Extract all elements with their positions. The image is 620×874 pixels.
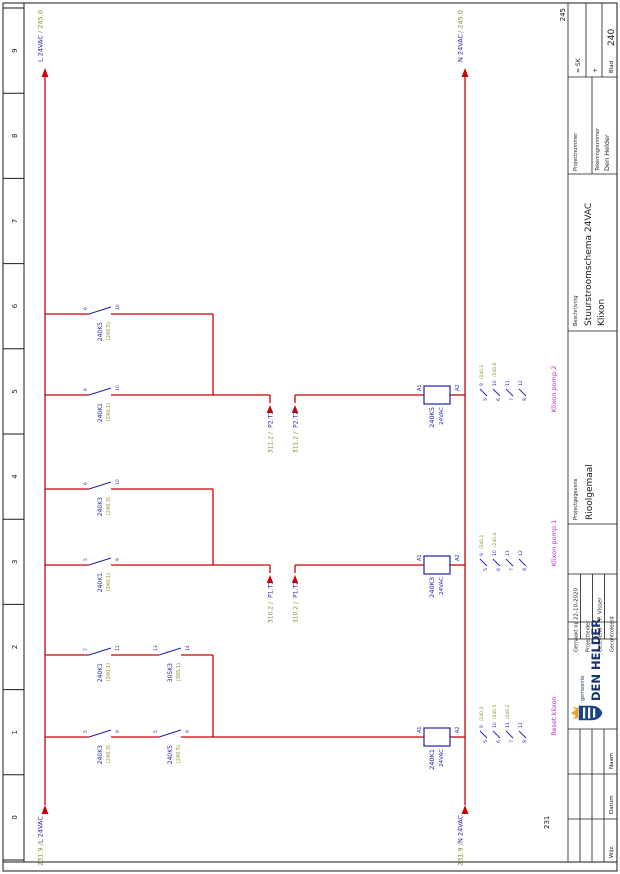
contact-ref: (240.1) <box>106 663 112 681</box>
contact-labels: 240K3 (240.3) 5 9 240K5 (240.5) 5 9 240K… <box>83 304 191 764</box>
sheet-label: Blad <box>609 61 615 73</box>
drawn-label: Getekend <box>598 628 604 652</box>
mirror-pin: 6 <box>496 398 502 401</box>
pin-label: 7 <box>83 648 89 651</box>
coil-name: 240K1 <box>428 749 436 770</box>
pin-label: 10 <box>115 304 121 310</box>
interrupt-labels: 310.2 / P1.T1 310.2 / P1.T2 311.2 / P2.T… <box>268 411 300 623</box>
titleblock-content: Wijz. Datum Naam gemeente DEN HELDER Gem… <box>571 29 617 858</box>
pin-label: 6 <box>83 482 89 485</box>
description-label: Beschrijving <box>573 295 579 326</box>
logo-text-small: gemeente <box>580 676 586 701</box>
prev-sheet-number: 231 <box>543 816 551 829</box>
mirror-pin: 12 <box>518 722 524 728</box>
coil-name: 240K5 <box>428 407 436 428</box>
mirror-pin: 8 <box>522 740 528 743</box>
contact-ref: (240.5) <box>176 745 182 763</box>
rail-dest-name: N 24VAC <box>457 33 465 62</box>
mirror-pin: 11 <box>505 722 511 728</box>
mirror-pin: 7 <box>509 740 515 743</box>
ruler-digit: 2 <box>11 645 19 649</box>
coil-voltage: 24VAC <box>439 749 445 767</box>
mirror-ref: /240.1 <box>479 364 485 379</box>
coil-pin-a1: A1 <box>417 384 423 391</box>
mirror-ref: /240.5 <box>492 704 498 719</box>
description-line1: Stuurstroomschema 24VAC <box>584 203 594 326</box>
mirror-ref: /240.1 <box>479 534 485 549</box>
contact-ref: (240.1) <box>106 403 112 421</box>
mirror-pin: 10 <box>492 722 498 728</box>
interrupt-ref: 311.2 / <box>268 431 275 453</box>
contact-name: 240K3 <box>97 745 104 764</box>
contact-name: 240K1 <box>97 573 104 592</box>
mirror-pin: 6 <box>496 740 502 743</box>
sheet-number: 240 <box>607 29 617 46</box>
rev-col-wijz: Wijz. <box>609 845 615 858</box>
coil-symbol <box>424 728 450 746</box>
contact-name: 240K5 <box>97 322 104 341</box>
contact-name: 240K1 <box>97 663 104 682</box>
contact-ref: (240.5) <box>106 322 112 340</box>
mirror-pin: 12 <box>518 380 524 386</box>
schematic-page: 0 1 2 3 4 5 6 7 8 9 <box>0 0 620 874</box>
mirror-pin: 7 <box>509 398 515 401</box>
pin-label: 9 <box>115 730 121 733</box>
pin-label: 10 <box>115 479 121 485</box>
coil-pin-a2: A2 <box>455 726 461 733</box>
interrupt-ref: 311.2 / <box>293 431 300 453</box>
coil-voltage: 24VAC <box>439 577 445 595</box>
ruler-digit: 6 <box>11 303 19 308</box>
rail-dest-ref: / 245.0 <box>37 10 45 33</box>
mirror-pin: 9 <box>479 725 485 728</box>
rail-source-name: N 24VAC <box>457 814 465 843</box>
rail-source-name: L 24VAC <box>37 816 45 843</box>
landscape-drawing: 0 1 2 3 4 5 6 7 8 9 <box>0 0 620 874</box>
interrupt-name: P2.T2 <box>293 411 300 428</box>
relay-coils: A1 A2 240K1 24VAC A1 A2 240K3 24VAC A1 A… <box>417 384 461 769</box>
projectnumber-label: Projectnummer <box>573 132 579 171</box>
lead-label: Projectleider <box>586 620 592 652</box>
contact-ref: (240.3) <box>106 497 112 515</box>
mirror-pin: 9 <box>479 553 485 556</box>
mirror-pin: 10 <box>492 380 498 386</box>
mirror-ref: /240.2 <box>505 704 511 719</box>
interrupt-ref: 310.2 / <box>293 601 300 623</box>
ruler-digit: 3 <box>11 560 19 564</box>
pin-label: 10 <box>115 385 121 391</box>
mirror-ref: /240.6 <box>492 362 498 377</box>
drawingnumber-value: Den Helder <box>603 134 611 171</box>
mirror-pin: 10 <box>492 550 498 556</box>
next-sheet-number: 245 <box>559 8 567 21</box>
logo-shield-icon <box>579 706 602 720</box>
pin-label: 14 <box>185 645 191 651</box>
mirror-pin: 6 <box>496 568 502 571</box>
pin-label: 11 <box>115 645 121 651</box>
coil-name: 240K3 <box>428 577 436 598</box>
mirror-pin: 11 <box>505 380 511 386</box>
rev-col-datum: Datum <box>609 795 615 814</box>
mirror-ref: /240.3 <box>479 706 485 721</box>
mirror-pin: 8 <box>522 398 528 401</box>
checked-label: Gecontroleerd <box>610 616 616 652</box>
mirror-pin: 11 <box>505 550 511 556</box>
mirror-pin: 5 <box>483 568 489 571</box>
pin-label: 5 <box>83 730 89 733</box>
coil-symbol <box>424 386 450 404</box>
mirror-ref: /240.4 <box>492 532 498 547</box>
contact-name: 305K3 <box>167 663 174 682</box>
made-value: 22-10-2020 <box>574 588 580 620</box>
pin-label: 6 <box>83 388 89 391</box>
pin-label: 5 <box>83 558 89 561</box>
ruler-digit: 1 <box>11 730 19 734</box>
circuit-wires <box>45 77 465 805</box>
mirror-glyphs <box>480 389 526 738</box>
ruler-digit: 9 <box>11 48 19 52</box>
mirror-pin: 7 <box>509 568 515 571</box>
interrupt-ref: 310.2 / <box>268 601 275 623</box>
function-texts: Reset klixon Klixon pomp 1 Klixon pomp 2 <box>550 366 558 736</box>
mirror-pin: 9 <box>479 383 485 386</box>
ruler-digit: 7 <box>11 219 19 223</box>
interrupt-name: P1.T2 <box>293 581 300 598</box>
wire-arrowheads <box>42 68 469 814</box>
contact-name: 240K3 <box>97 497 104 516</box>
plant-designation: = SK <box>575 57 582 73</box>
drawingnumber-label: Tekeningnummer <box>595 127 601 172</box>
contact-ref: (305.1) <box>176 663 182 681</box>
contact-ref: (240.1) <box>106 573 112 591</box>
mirror-pin: 12 <box>518 550 524 556</box>
rail-source-ref: 231.9 / <box>457 842 465 866</box>
rev-col-naam: Naam <box>609 753 615 769</box>
pin-label: 6 <box>83 307 89 310</box>
contact-ref: (240.3) <box>106 745 112 763</box>
function-text: Reset klixon <box>550 696 558 735</box>
rail-dest-ref: / 245.0 <box>457 10 465 33</box>
interrupt-name: P2.T1 <box>268 411 275 428</box>
project-label: Projectgegevens <box>573 478 579 520</box>
mirror-texts: 5 9 /240.3 6 10 /240.5 7 11 /240.2 8 12 … <box>479 362 528 742</box>
logo-crown-icon <box>571 707 578 719</box>
coil-pin-a1: A1 <box>417 554 423 561</box>
coil-symbol <box>424 556 450 574</box>
mirror-pin: 8 <box>522 568 528 571</box>
mirror-pin: 5 <box>483 398 489 401</box>
location-designation: + <box>592 68 599 73</box>
coil-pin-a2: A2 <box>455 384 461 391</box>
ruler-digit: 5 <box>11 389 19 393</box>
interrupt-name: P1.T1 <box>268 581 275 598</box>
contact-name: 240K1 <box>97 403 104 422</box>
ruler-digit: 0 <box>11 815 19 819</box>
rail-dest-name: L 24VAC <box>37 35 45 62</box>
coil-voltage: 24VAC <box>439 407 445 425</box>
rail-source-ref: 231.9 / <box>37 842 45 866</box>
ruler-digit: 8 <box>11 134 19 138</box>
pin-label: 13 <box>153 645 159 651</box>
made-label: Gemaakt op <box>574 621 580 652</box>
drawn-value: P. Visser <box>598 597 604 620</box>
contact-mirrors: 5 9 /240.3 6 10 /240.5 7 11 /240.2 8 12 … <box>479 362 528 742</box>
schematic-canvas: 0 1 2 3 4 5 6 7 8 9 <box>0 0 620 874</box>
function-text: Klixon pomp 2 <box>550 366 558 412</box>
project-value: Rioolgemaal <box>585 464 595 520</box>
function-text: Klixon pomp 1 <box>550 520 558 566</box>
coil-pin-a2: A2 <box>455 554 461 561</box>
contact-name: 240K5 <box>167 745 174 764</box>
pin-label: 9 <box>115 558 121 561</box>
pin-label: 9 <box>185 730 191 733</box>
ruler-digit: 4 <box>11 474 19 479</box>
mirror-pin: 5 <box>483 740 489 743</box>
description-line2: Klixon <box>597 299 607 326</box>
coil-pin-a1: A1 <box>417 726 423 733</box>
pin-label: 5 <box>153 730 159 733</box>
